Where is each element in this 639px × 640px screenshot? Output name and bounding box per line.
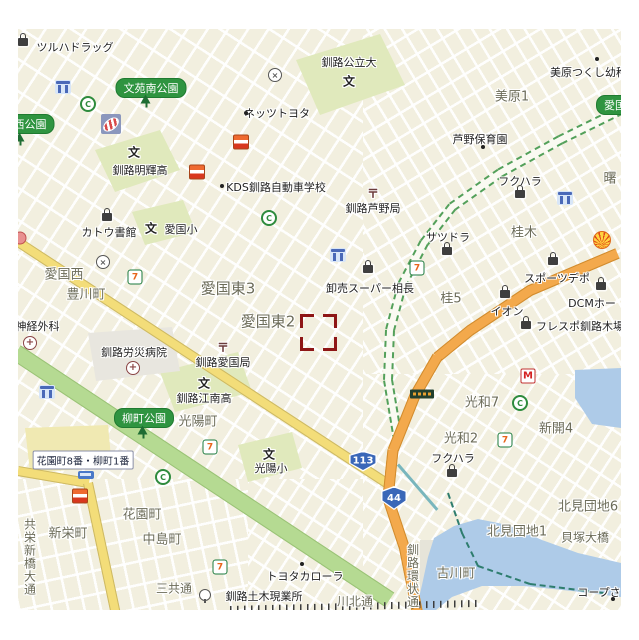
shop-bag-icon[interactable] bbox=[521, 321, 531, 329]
poi-dot bbox=[595, 57, 599, 61]
park-tree-icon[interactable] bbox=[141, 95, 152, 108]
c-store-icon[interactable]: C bbox=[261, 210, 277, 226]
police-box-icon[interactable]: × bbox=[268, 68, 282, 82]
torii-landmark-icon[interactable] bbox=[330, 248, 346, 262]
selection-corner bbox=[323, 337, 337, 351]
flower-poi-icon[interactable] bbox=[18, 232, 27, 245]
poi-label[interactable]: 釧路明輝高 bbox=[113, 162, 168, 178]
poi-label[interactable]: 釧路労災病院 bbox=[101, 344, 167, 360]
icon-shape bbox=[80, 473, 91, 476]
route-shield: 44 bbox=[380, 486, 408, 510]
poi-label[interactable]: イオン bbox=[491, 303, 524, 319]
area-label: 北見団地1 bbox=[487, 521, 547, 540]
area-label: 新開4 bbox=[539, 418, 573, 437]
icon-shape bbox=[517, 185, 523, 191]
seicomart-icon[interactable] bbox=[233, 135, 249, 150]
route-shield-number: 113 bbox=[350, 452, 377, 470]
area-label: 桂木 bbox=[511, 222, 537, 241]
icon-shape bbox=[331, 249, 345, 252]
area-label: 愛国東2 bbox=[241, 311, 296, 332]
icon-shape bbox=[560, 196, 563, 204]
park-tree-icon[interactable] bbox=[138, 426, 149, 439]
icon-shape bbox=[141, 95, 151, 104]
c-store-icon[interactable]: C bbox=[80, 96, 96, 112]
shop-bag-icon[interactable] bbox=[500, 290, 510, 298]
seicomart-icon[interactable] bbox=[72, 489, 88, 504]
torii-landmark-icon[interactable] bbox=[557, 191, 573, 205]
poi-dot bbox=[300, 562, 304, 566]
icon-shape bbox=[40, 386, 54, 389]
poi-label[interactable]: ツルハドラッグ bbox=[37, 39, 114, 55]
area-label: 花園町 bbox=[122, 504, 161, 523]
icon-shape bbox=[413, 393, 431, 396]
road-sign-icon[interactable] bbox=[410, 390, 434, 399]
seven-eleven-icon[interactable]: 7 bbox=[498, 433, 513, 448]
hospital-icon[interactable]: + bbox=[126, 361, 140, 375]
shop-bag-icon[interactable] bbox=[596, 282, 606, 290]
hospital-icon[interactable]: + bbox=[23, 336, 37, 350]
poi-label[interactable]: 美原つくし幼稚園 bbox=[550, 64, 621, 80]
seven-eleven-icon[interactable]: 7 bbox=[203, 440, 218, 455]
shell-gas-icon[interactable] bbox=[593, 231, 611, 249]
seven-eleven-icon[interactable]: 7 bbox=[213, 560, 228, 575]
school-mark[interactable]: 文 bbox=[343, 73, 355, 90]
shop-bag-icon[interactable] bbox=[515, 190, 525, 198]
selection-corner bbox=[300, 337, 314, 351]
icon-shape bbox=[104, 208, 110, 214]
poi-label[interactable]: 脳神経外科 bbox=[18, 318, 60, 334]
store-logo-icon[interactable] bbox=[101, 114, 121, 134]
poi-label[interactable]: 愛国小 bbox=[165, 221, 198, 237]
post-office-mark[interactable]: 〒 bbox=[217, 339, 229, 356]
area-label: 中島町 bbox=[142, 529, 181, 548]
icon-shape bbox=[340, 253, 343, 261]
school-mark[interactable]: 文 bbox=[263, 446, 275, 463]
poi-dot bbox=[481, 145, 485, 149]
icon-shape bbox=[567, 196, 570, 204]
icon-shape bbox=[138, 426, 148, 435]
icon-shape bbox=[18, 133, 25, 142]
torii-landmark-icon[interactable] bbox=[39, 385, 55, 399]
seicomart-icon[interactable] bbox=[189, 165, 205, 180]
map-page: 美原1曙桂木桂5愛国西豊川町愛国東3愛国東2光陽町新栄町花園町中島町三共通光和7… bbox=[0, 0, 639, 640]
icon-shape bbox=[42, 390, 45, 398]
icon-shape bbox=[523, 316, 529, 322]
shop-bag-icon[interactable] bbox=[18, 38, 28, 46]
poi-label[interactable]: DCMホー bbox=[568, 295, 616, 311]
icon-shape bbox=[550, 252, 556, 258]
poi-dot bbox=[220, 184, 224, 188]
poi-label[interactable]: トヨタカローラ bbox=[267, 568, 344, 584]
icon-shape bbox=[142, 435, 144, 439]
c-store-icon[interactable]: C bbox=[155, 469, 171, 485]
route-shield: 113 bbox=[348, 451, 378, 472]
poi-label[interactable]: フレスポ釧路木場 bbox=[536, 318, 621, 334]
map-canvas[interactable]: 美原1曙桂木桂5愛国西豊川町愛国東3愛国東2光陽町新栄町花園町中島町三共通光和7… bbox=[18, 29, 621, 610]
seven-eleven-icon[interactable]: 7 bbox=[410, 261, 425, 276]
area-label: 新栄町 bbox=[48, 523, 87, 542]
poi-label[interactable]: KDS釧路自動車学校 bbox=[226, 179, 326, 195]
icon-shape bbox=[502, 285, 508, 291]
area-label: 光和2 bbox=[444, 428, 478, 447]
area-label: 美原1 bbox=[495, 86, 529, 105]
area-label: 北見団地6 bbox=[558, 496, 618, 515]
area-label: 古川町 bbox=[436, 563, 475, 582]
seven-eleven-icon[interactable]: 7 bbox=[128, 270, 143, 285]
icon-shape bbox=[558, 192, 572, 195]
school-mark[interactable]: 文 bbox=[145, 220, 157, 237]
poi-label[interactable]: 釧路愛国局 bbox=[196, 354, 251, 370]
icon-shape bbox=[333, 253, 336, 261]
icon-shape bbox=[65, 85, 68, 93]
street-name-vertical: 釧路環状通 bbox=[405, 544, 422, 609]
school-mark[interactable]: 文 bbox=[128, 144, 140, 161]
poi-label[interactable]: 釧路公立大 bbox=[322, 54, 377, 70]
government-office-icon[interactable] bbox=[199, 589, 211, 601]
park-tree-icon[interactable] bbox=[18, 133, 26, 146]
poi-label[interactable]: 釧路江南高 bbox=[177, 390, 232, 406]
icon-shape bbox=[101, 114, 122, 134]
selection-corner bbox=[300, 314, 314, 328]
poi-label[interactable]: スポーツデポ bbox=[524, 270, 590, 286]
park-pill-label: 西公園 bbox=[18, 114, 55, 134]
icon-shape bbox=[20, 33, 26, 39]
area-label: 川北通 bbox=[337, 593, 373, 610]
post-office-mark[interactable]: 〒 bbox=[367, 185, 379, 202]
icon-shape bbox=[58, 85, 61, 93]
poi-label[interactable]: 卸売スーパー相長 bbox=[326, 280, 414, 296]
school-mark[interactable]: 文 bbox=[198, 375, 210, 392]
area-label: 曙 bbox=[603, 168, 616, 187]
selection-brackets[interactable] bbox=[300, 314, 337, 351]
poi-label[interactable]: カトウ書館 bbox=[82, 224, 137, 240]
icon-shape bbox=[444, 242, 450, 248]
area-label: 愛国東3 bbox=[201, 278, 256, 299]
area-label: 光和7 bbox=[465, 392, 499, 411]
icon-shape bbox=[204, 599, 206, 603]
c-store-icon[interactable]: C bbox=[512, 395, 528, 411]
icon-shape bbox=[449, 464, 455, 470]
poi-dot bbox=[244, 111, 248, 115]
icon-shape bbox=[19, 142, 21, 146]
intersection-label: 花園町8番・柳町1番 bbox=[33, 451, 134, 470]
route-shield-number: 44 bbox=[382, 488, 407, 509]
area-label: 光陽町 bbox=[178, 411, 217, 430]
shop-bag-icon[interactable] bbox=[442, 247, 452, 255]
icon-shape bbox=[49, 390, 52, 398]
poi-label[interactable]: 釧路土木現業所 bbox=[226, 588, 303, 604]
poi-label[interactable]: ネッツトヨタ bbox=[244, 105, 310, 121]
area-label: 桂5 bbox=[440, 288, 461, 307]
area-label: 三共通 bbox=[156, 580, 192, 597]
icon-shape bbox=[598, 277, 604, 283]
park-pill-label: 愛国 bbox=[596, 95, 621, 115]
poi-label[interactable]: 釧路芦野局 bbox=[346, 200, 401, 216]
mcdonalds-icon[interactable]: M bbox=[521, 369, 536, 384]
shop-bag-icon[interactable] bbox=[363, 265, 373, 273]
icon-shape bbox=[56, 81, 70, 84]
area-label: 豊川町 bbox=[66, 284, 105, 303]
icon-shape bbox=[365, 260, 371, 266]
area-label: 貝塚大橋 bbox=[561, 529, 609, 546]
shop-bag-icon[interactable] bbox=[548, 257, 558, 265]
icon-shape bbox=[145, 104, 147, 108]
torii-landmark-icon[interactable] bbox=[55, 80, 71, 94]
area-label: 愛国西 bbox=[44, 264, 83, 283]
poi-dot bbox=[611, 597, 615, 601]
shop-bag-icon[interactable] bbox=[447, 469, 457, 477]
police-box-icon[interactable]: × bbox=[96, 255, 110, 269]
shop-bag-icon[interactable] bbox=[102, 213, 112, 221]
selection-corner bbox=[323, 314, 337, 328]
street-name-vertical: 共栄新橋大通 bbox=[22, 518, 39, 596]
poi-label[interactable]: 芦野保育園 bbox=[453, 131, 508, 147]
bus-stop-icon[interactable] bbox=[78, 471, 94, 479]
